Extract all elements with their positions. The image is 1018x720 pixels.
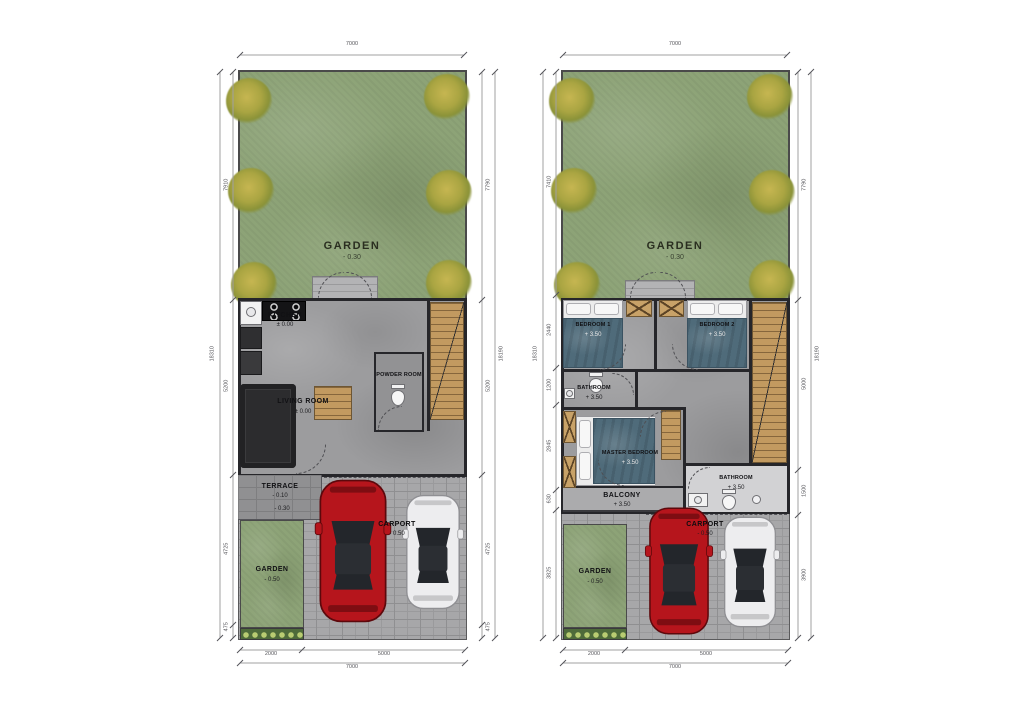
master-bedroom-level: + 3.50	[610, 460, 650, 466]
dim-label: 7410	[547, 164, 553, 200]
carport-label: CARPORT	[676, 521, 734, 529]
shower-drain-icon	[752, 495, 761, 504]
dim-label: 3825	[547, 555, 553, 591]
dim-label: 1500	[802, 473, 808, 509]
dim-label: 18190	[815, 336, 821, 372]
pillow	[579, 452, 591, 480]
carport-level: - 0.50	[685, 531, 725, 537]
bathroom-upper-label: BATHROOM	[565, 385, 623, 391]
wall	[749, 298, 752, 466]
dim-label: 7000	[655, 42, 695, 48]
carport-level: - 0.50	[377, 531, 417, 537]
dim-label: 3900	[802, 557, 808, 593]
upper-floor-plan: GARDEN - 0.30 BEDROOM 1 + 3.50	[0, 0, 1018, 720]
bedroom1-label: BEDROOM 1	[565, 322, 621, 328]
wall	[635, 369, 638, 410]
wardrobe-icon	[563, 456, 576, 488]
floor-plan-sheet: GARDEN - 0.30 KITCHEN ± 0.00 LIVING ROOM…	[0, 0, 1018, 720]
pillow	[718, 303, 743, 315]
pillow	[690, 303, 715, 315]
front-garden-label: GARDEN	[567, 568, 623, 576]
bathroom-upper-level: + 3.50	[572, 395, 616, 401]
dim-label: 18310	[533, 336, 539, 372]
wardrobe-icon	[626, 300, 652, 317]
flower-bed	[563, 628, 627, 640]
balcony-level: + 3.50	[602, 502, 642, 508]
wall	[654, 298, 657, 372]
dimension-line-top	[557, 47, 793, 61]
master-bedroom-label: MASTER BEDROOM	[585, 450, 675, 456]
dim-label: 7000	[655, 665, 695, 671]
pillow	[579, 420, 591, 448]
dim-label: 2000	[574, 652, 614, 658]
bathroom-lower-label: BATHROOM	[706, 475, 766, 481]
dim-label: 5000	[686, 652, 726, 658]
stair-direction-line	[752, 302, 787, 463]
garden-label: GARDEN	[635, 240, 715, 252]
carport-label: CARPORT	[368, 521, 426, 529]
sink-basin	[694, 496, 702, 504]
tree-icon	[749, 170, 795, 216]
dim-label: 1200	[547, 367, 553, 403]
balcony-label: BALCONY	[592, 492, 652, 500]
front-garden-level: - 0.50	[575, 579, 615, 585]
pillow	[566, 303, 591, 315]
dim-label: 630	[547, 481, 553, 517]
dim-label: 5000	[802, 366, 808, 402]
toilet-icon	[589, 372, 603, 377]
bedroom1-level: + 3.50	[573, 332, 613, 338]
dim-label: 2845	[547, 428, 553, 464]
site-edge-right	[789, 512, 790, 640]
garden-level: - 0.30	[655, 254, 695, 261]
dim-label: 2440	[547, 312, 553, 348]
wardrobe-icon	[659, 300, 684, 317]
bedroom2-label: BEDROOM 2	[689, 322, 745, 328]
dim-label: 7790	[802, 167, 808, 203]
front-garden	[563, 524, 627, 628]
bedroom2-level: + 3.50	[697, 332, 737, 338]
toilet-icon	[722, 489, 736, 494]
wardrobe-icon	[563, 411, 576, 443]
tree-icon	[747, 74, 793, 120]
pillow	[594, 303, 619, 315]
